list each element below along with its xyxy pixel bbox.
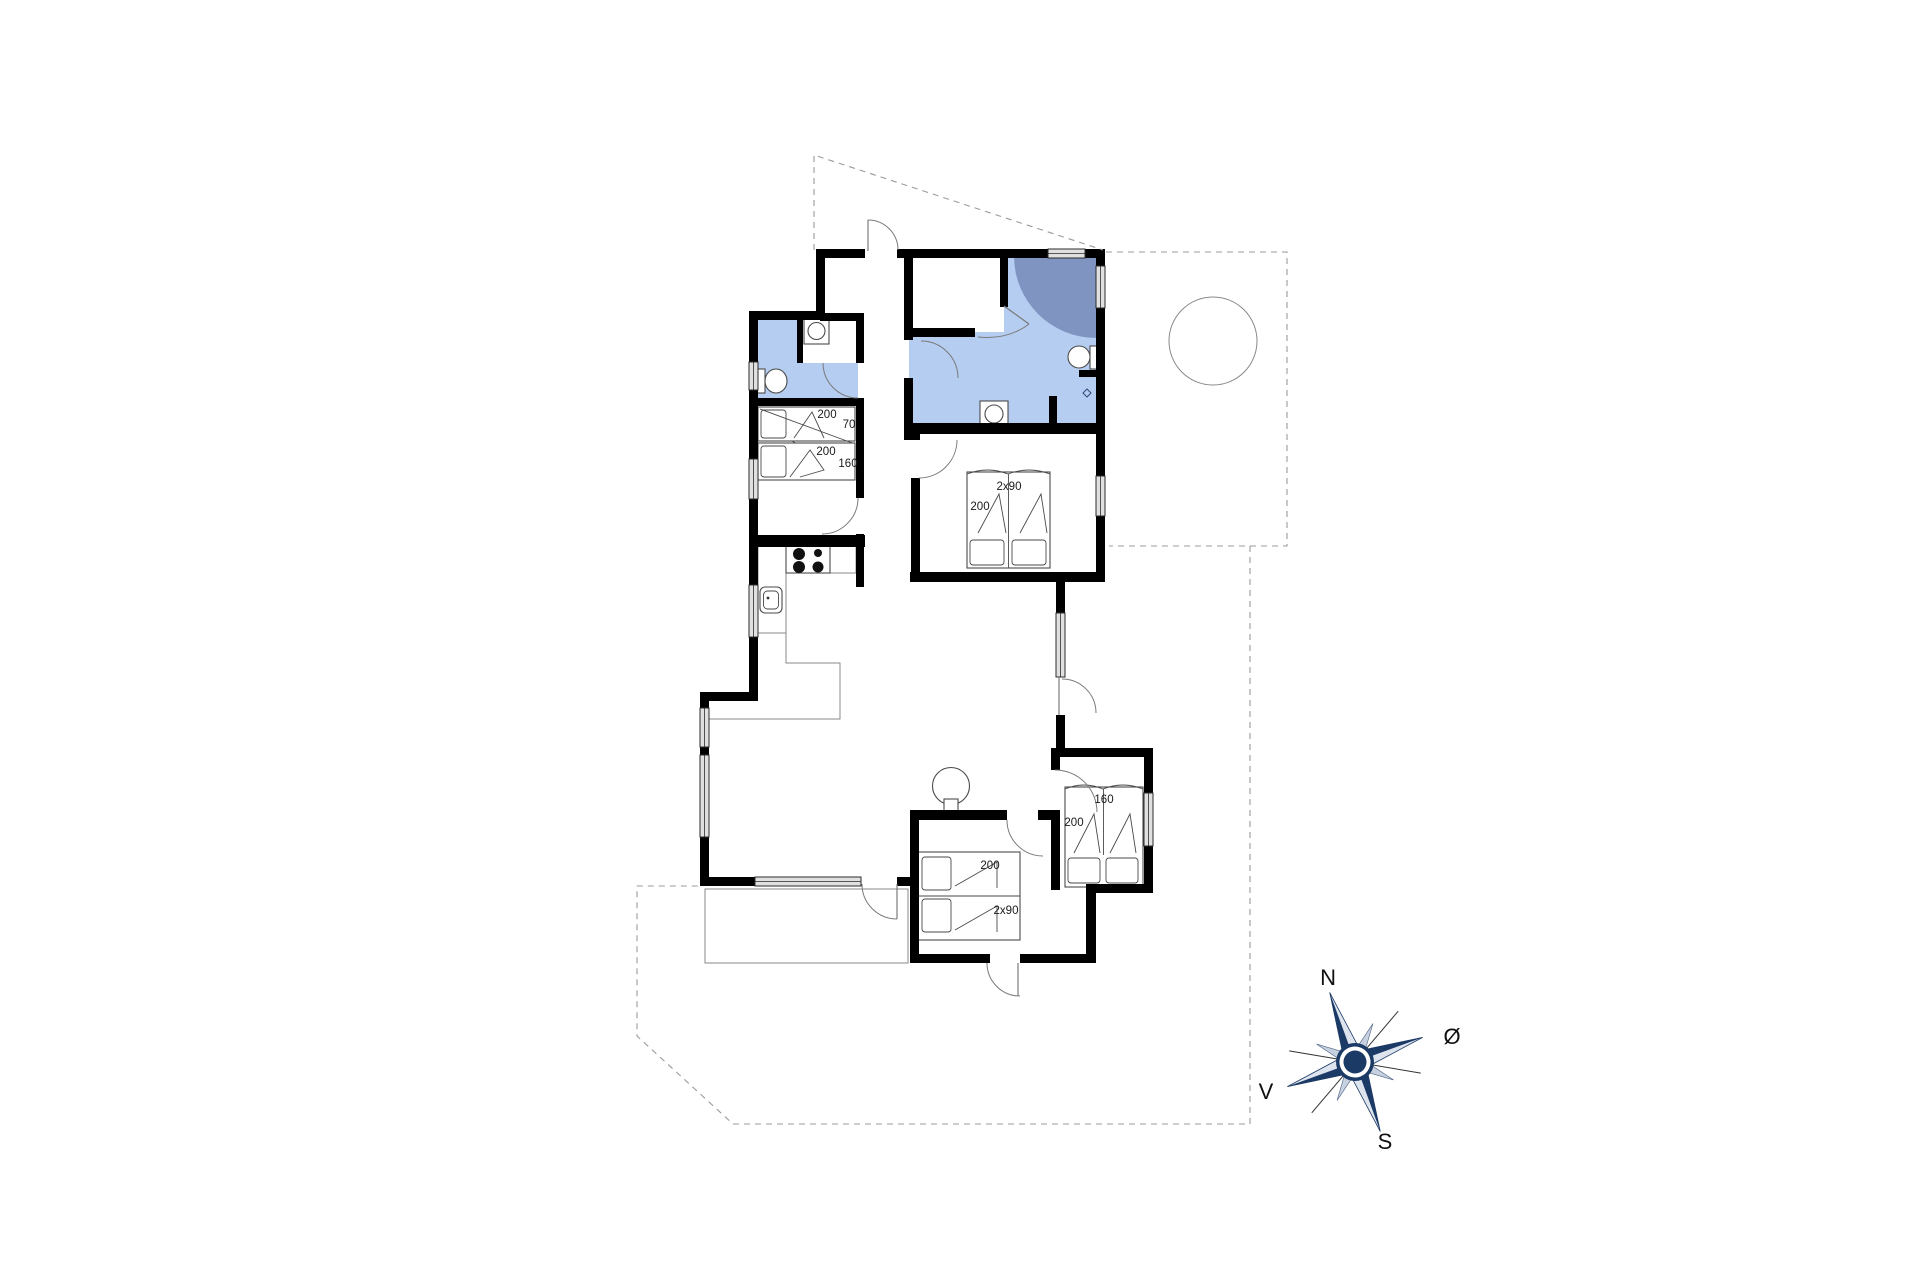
stove-burner-icon bbox=[814, 549, 822, 557]
dim-label: 200 bbox=[816, 446, 835, 458]
dim-label: 200 bbox=[1064, 817, 1083, 829]
east-exterior-door-arc bbox=[1062, 679, 1096, 713]
bedroom-east-door-arc bbox=[919, 440, 957, 478]
floor-plan-drawing: 200 70 200 160 2x90 200 160 200 200 2x90… bbox=[0, 0, 1920, 1279]
entry-door-arc bbox=[868, 220, 898, 250]
south-entrance-door-arc bbox=[987, 963, 1020, 996]
dim-label: 70 bbox=[843, 419, 856, 431]
dim-label: 160 bbox=[1094, 794, 1113, 806]
compass-east-label: Ø bbox=[1443, 1024, 1460, 1049]
toilet-icon bbox=[765, 369, 787, 393]
dim-label: 2x90 bbox=[994, 905, 1019, 917]
compass-south-label: S bbox=[1378, 1129, 1393, 1154]
dim-label: 160 bbox=[838, 458, 857, 470]
terrace-outline bbox=[705, 889, 908, 963]
dim-label: 200 bbox=[817, 409, 836, 421]
kitchen-sink-drain bbox=[767, 597, 770, 600]
bedroom-south-door-arc bbox=[1007, 820, 1043, 856]
washbasin-bowl bbox=[985, 405, 1003, 423]
stove-burner-icon bbox=[813, 562, 824, 573]
dim-label: 200 bbox=[980, 860, 999, 872]
bed-south bbox=[918, 852, 1020, 940]
kitchen-counter-right bbox=[830, 545, 856, 573]
compass-rose-icon: N Ø S V bbox=[1259, 965, 1461, 1156]
compass-star bbox=[1262, 968, 1448, 1156]
washbasin-bowl bbox=[808, 323, 825, 340]
stove-burner-icon bbox=[793, 561, 805, 573]
dim-label: 2x90 bbox=[997, 481, 1022, 493]
toilet-icon bbox=[1068, 346, 1090, 368]
compass-north-label: N bbox=[1320, 965, 1336, 990]
bathroom-closet-room bbox=[909, 254, 1004, 332]
hot-tub-icon bbox=[1169, 297, 1257, 385]
compass-west-label: V bbox=[1259, 1079, 1274, 1104]
bedroom-nw-door-arc bbox=[822, 498, 858, 534]
wood-stove-icon bbox=[933, 768, 970, 813]
kitchen-floor-edge bbox=[709, 633, 840, 719]
beds bbox=[758, 407, 1143, 940]
stove-burner-icon bbox=[793, 548, 805, 560]
dim-label: 200 bbox=[970, 501, 989, 513]
stove-icon bbox=[786, 545, 830, 573]
floor-plan-page: 200 70 200 160 2x90 200 160 200 200 2x90… bbox=[0, 0, 1920, 1279]
